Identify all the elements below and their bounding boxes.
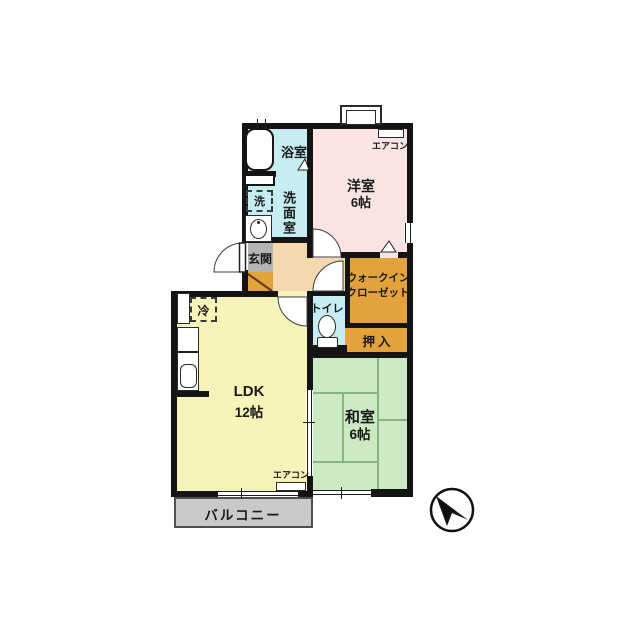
- floor-plan: 浴室 洗面室 洗 玄関 洋室 6帖 エアコン ウォークイン クローゼット トイレ…: [0, 0, 640, 640]
- bath-label: 浴室: [272, 142, 316, 161]
- tatami-line: [313, 461, 379, 463]
- pipe-space-box: [177, 293, 190, 324]
- wall: [345, 323, 413, 328]
- wall: [171, 491, 218, 497]
- window-line: [218, 495, 298, 496]
- wall: [242, 270, 248, 291]
- sliding-door-tick: [303, 422, 315, 423]
- balcony-label: バルコニー: [184, 504, 302, 524]
- sliding-door-line: [307, 390, 308, 476]
- wall: [307, 352, 313, 390]
- wall: [371, 489, 413, 497]
- shoe-cabinet: [248, 272, 273, 292]
- aircon-label-western: エアコン: [368, 139, 412, 152]
- toilet-label: トイレ: [307, 300, 347, 316]
- wall: [307, 352, 413, 358]
- tatami-line: [313, 392, 379, 394]
- window-line: [410, 223, 411, 243]
- wall: [407, 123, 413, 497]
- oshiire-label: 押入: [350, 331, 406, 350]
- washroom-counter: [244, 174, 275, 186]
- window-line: [313, 490, 371, 491]
- window-tick: [341, 487, 342, 499]
- hall-area-east: [307, 258, 347, 291]
- wash-basin-faucet: [257, 221, 260, 224]
- north-arrow-icon: [431, 489, 473, 531]
- bay-window-inner: [346, 110, 376, 125]
- aircon-unit-ldk: [276, 482, 306, 491]
- aircon-label-ldk: エアコン: [270, 468, 312, 481]
- aircon-unit-western: [378, 129, 404, 138]
- entry-door-arc: [214, 243, 243, 272]
- washitsu-size-label: 6帖: [336, 423, 384, 443]
- window-tick: [241, 488, 242, 499]
- toilet-bowl-icon: [318, 315, 336, 338]
- fridge-label: 冷: [190, 302, 217, 319]
- sliding-door-line: [311, 390, 312, 476]
- entry-label: 玄関: [244, 250, 276, 267]
- window-line: [313, 494, 371, 495]
- kitchen-counter-divider: [177, 351, 199, 353]
- washer-label: 洗: [246, 193, 273, 209]
- bathtub-icon: [245, 128, 274, 171]
- wic-label-line1: ウォークイン: [346, 270, 410, 285]
- ldk-size-label: 12帖: [219, 401, 279, 421]
- wall: [398, 252, 413, 258]
- toilet-tank-icon: [317, 337, 338, 348]
- window-line: [218, 491, 298, 492]
- ldk-label: LDK: [219, 383, 279, 400]
- washroom-label: 洗面室: [279, 184, 298, 242]
- wic-label-line2: クローゼット: [346, 285, 410, 300]
- wall: [171, 391, 209, 397]
- window-line: [405, 223, 406, 243]
- kitchen-sink-icon: [180, 364, 197, 388]
- wall: [307, 291, 347, 296]
- western-size-label: 6帖: [337, 192, 385, 211]
